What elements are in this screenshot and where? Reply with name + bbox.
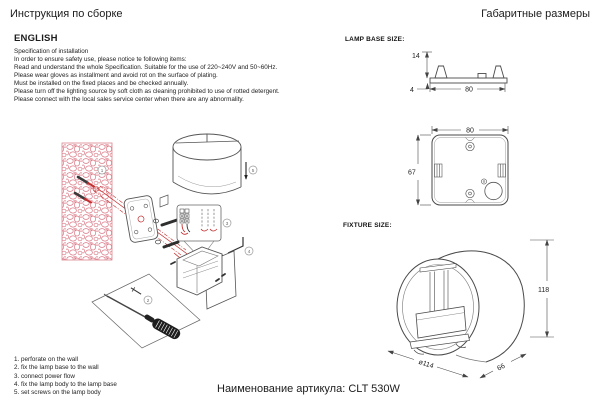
mounting-plate bbox=[123, 195, 158, 243]
mounting-clip bbox=[160, 195, 168, 207]
wall-texture bbox=[62, 143, 112, 260]
fixture-drawing: 118 ø114 66 bbox=[380, 230, 560, 385]
instruction-line: Specification of installation bbox=[14, 48, 349, 56]
dim-base-width: 80 bbox=[465, 87, 473, 94]
article-name: Наименование артикула: CLT 530W bbox=[217, 383, 400, 395]
step-marker-5: 5 bbox=[249, 166, 257, 174]
dim-front-width: 80 bbox=[466, 128, 474, 135]
dim-fixture-height: 118 bbox=[538, 287, 549, 294]
step-item: 5. set screws on the lamp body bbox=[14, 389, 117, 397]
base-front-view-drawing: 80 67 bbox=[405, 112, 515, 212]
step-item: 4. fix the lamp body to the lamp base bbox=[14, 381, 117, 389]
step-marker-1: 1 bbox=[98, 166, 106, 174]
dim-front-height: 67 bbox=[408, 170, 416, 177]
english-instructions-block: ENGLISH Specification of installation In… bbox=[14, 33, 349, 104]
svg-text:2: 2 bbox=[147, 298, 150, 303]
svg-text:3: 3 bbox=[226, 221, 229, 226]
svg-text:1: 1 bbox=[101, 168, 104, 173]
svg-text:5: 5 bbox=[252, 168, 255, 173]
dim-fixture-depth: 66 bbox=[496, 363, 506, 373]
instruction-line: Please connect with the local sales serv… bbox=[14, 96, 349, 104]
dimensions-title-ru: Габаритные размеры bbox=[481, 8, 590, 20]
step-marker-3: 3 bbox=[223, 219, 231, 227]
dim-plate-thickness: 4 bbox=[410, 87, 414, 94]
step-marker-2: 2 bbox=[144, 296, 152, 304]
step-item: 2. fix the lamp base to the wall bbox=[14, 364, 117, 372]
step-item: 1. perforate on the wall bbox=[14, 356, 117, 364]
fixture-size-label: FIXTURE SIZE: bbox=[343, 222, 392, 229]
dim-clip-height: 14 bbox=[412, 53, 420, 60]
lamp-base-size-label: LAMP BASE SIZE: bbox=[345, 36, 405, 43]
english-heading: ENGLISH bbox=[14, 33, 349, 44]
assembly-diagram: 1 bbox=[50, 130, 340, 385]
instruction-line: Please turn off the lighting source by s… bbox=[14, 88, 349, 96]
step-item: 3. connect power flow bbox=[14, 373, 117, 381]
page-title-ru: Инструкция по сборке bbox=[10, 8, 123, 20]
instruction-line: In order to ensure safety use, please no… bbox=[14, 56, 349, 64]
svg-text:4: 4 bbox=[248, 249, 251, 254]
base-side-dimension-lines bbox=[417, 52, 505, 92]
lamp-shade bbox=[173, 134, 241, 194]
fixture-body bbox=[397, 251, 524, 362]
instruction-sheet: Инструкция по сборке Габаритные размеры … bbox=[0, 0, 600, 413]
step-marker-4: 4 bbox=[245, 247, 253, 255]
base-front-outline bbox=[432, 135, 508, 205]
instruction-line: Read and understand the whole Specificat… bbox=[14, 64, 349, 72]
base-side-view-drawing: 14 4 80 bbox=[400, 45, 515, 100]
dim-fixture-diameter: ø114 bbox=[418, 359, 435, 370]
assembly-steps-list: 1. perforate on the wall 2. fix the lamp… bbox=[14, 356, 117, 397]
instruction-line: Must be installed on the fixed places an… bbox=[14, 80, 349, 88]
instruction-line: Please wear gloves as installment and av… bbox=[14, 72, 349, 80]
lamp-body bbox=[171, 247, 236, 309]
base-side-profile bbox=[430, 66, 507, 83]
